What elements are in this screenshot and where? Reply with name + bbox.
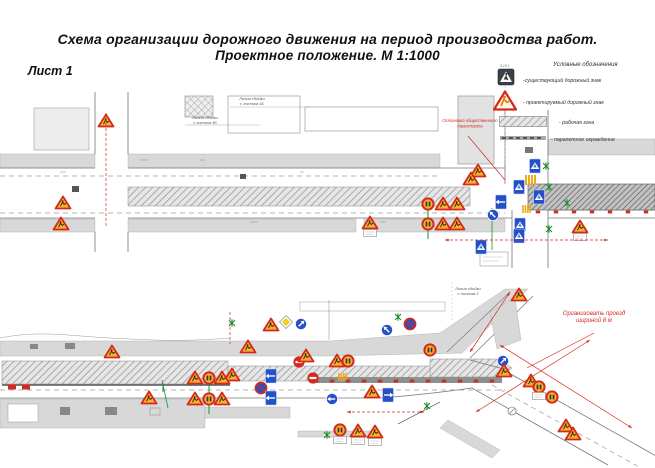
title-line-1: Схема организации дорожного движения на …: [0, 31, 655, 47]
existing-sign-icon: [497, 68, 515, 86]
sign-tick: [410, 380, 414, 383]
sign-tick: [426, 380, 430, 383]
sign-warn: [351, 425, 366, 437]
sign-circle-sym: [508, 407, 516, 415]
sign-board: [352, 438, 365, 445]
legend-item-workzone-label: - рабочая зона: [559, 120, 594, 126]
sign-tree: [395, 313, 401, 321]
sign-tick: [378, 380, 382, 383]
sign-tick: [442, 380, 446, 383]
sign-brect: [514, 229, 525, 243]
top-work-zone-dark: [528, 184, 655, 210]
sign-brect-arrow: [266, 369, 277, 383]
sign-bcirc-arrow: [326, 393, 337, 404]
legend: Условные обозначения 5.19.1 -существующи…: [487, 60, 655, 160]
sign-redblock: [22, 385, 30, 390]
sign-speed: [203, 393, 214, 404]
sign-warn: [142, 392, 157, 404]
sign-board: [369, 439, 382, 446]
sign-zebra: [525, 175, 536, 185]
sign-bcirc-slash: [255, 382, 266, 393]
sign-diamond: [279, 315, 292, 328]
sign-warn: [215, 393, 230, 405]
top-work-zone: [128, 187, 470, 206]
sign-tick: [536, 211, 540, 214]
legend-item-parapet-label: - парапетное ограждение: [551, 137, 615, 143]
bottom-plan: Линия сбойкис листом 2Организовать проез…: [0, 282, 655, 468]
sign-redblock: [8, 385, 16, 390]
sign-brect: [530, 159, 541, 173]
sign-speed: [422, 198, 433, 209]
sign-bcirc-arrow: [487, 209, 498, 220]
sign-tree: [546, 225, 552, 233]
sign-brect-arrow: [383, 388, 394, 402]
bottom-upper-sidewalk: [0, 289, 528, 356]
sign-zebra: [522, 205, 531, 213]
sign-tick: [608, 211, 612, 214]
sign-tick: [362, 380, 366, 383]
sign-tree: [424, 402, 430, 410]
sign-brect: [476, 240, 487, 254]
sign-warn: [56, 197, 71, 209]
sign-speed: [424, 344, 435, 355]
drawing-sheet: Линия сбойкис листом 1БЛиния сбойкис лис…: [0, 0, 655, 468]
sign-tick: [474, 380, 478, 383]
work-zone-swatch: [499, 116, 547, 127]
diagram-label: Линия сбойкис листом 1Б: [238, 96, 265, 106]
sign-warn: [573, 221, 588, 233]
sign-bcirc-slash: [404, 318, 415, 329]
sign-brect-arrow: [266, 391, 277, 405]
parapet-swatch: [500, 135, 546, 141]
sign-tick: [626, 211, 630, 214]
sign-tick: [554, 211, 558, 214]
sign-board: [334, 437, 347, 444]
sign-speed: [334, 424, 345, 435]
diagram-label: Линия сбойкис листом 2: [454, 286, 481, 296]
sign-tick: [572, 211, 576, 214]
projected-sign-icon: [493, 90, 517, 111]
dimension-line: [527, 333, 594, 368]
sign-speed: [422, 218, 433, 229]
sign-brect: [534, 190, 545, 204]
top-labels: Линия сбойкис листом 1БЛиния сбойкис лис…: [191, 96, 498, 128]
legend-item-projected-label: - проектируемый дорожный знак: [523, 100, 604, 106]
sign-tick: [346, 380, 350, 383]
sign-speed: [342, 355, 353, 366]
sign-tick: [644, 211, 648, 214]
sign-speed: [203, 372, 214, 383]
sign-warn: [264, 319, 279, 331]
sign-tick: [458, 380, 462, 383]
sign-speed: [533, 381, 544, 392]
diagram-label: Линия сбойкис листом 1Б: [191, 115, 218, 125]
sign-speed: [546, 391, 557, 402]
sign-brect: [514, 180, 525, 194]
sign-bcirc-arrow: [381, 324, 392, 335]
sign-board: [533, 393, 546, 400]
sign-tick: [394, 380, 398, 383]
sign-bcirc-arrow: [295, 318, 306, 329]
bottom-arrow-line: [398, 402, 440, 424]
sheet-label: Лист 1: [28, 64, 73, 78]
sign-tick: [590, 211, 594, 214]
sign-tick: [330, 380, 334, 383]
sign-warn: [365, 386, 380, 398]
drawing-title: Схема организации дорожного движения на …: [0, 31, 655, 63]
legend-item-existing-label: -существующий дорожный знак: [523, 78, 601, 84]
bottom-curb-line: [0, 334, 230, 340]
sign-brect-arrow: [496, 195, 507, 209]
sign-board: [364, 230, 377, 237]
bottom-work-zone: [2, 359, 512, 385]
sign-tick: [490, 380, 494, 383]
diagram-label: Организовать проездшириной 8 м: [563, 311, 626, 324]
legend-heading: Условные обозначения: [553, 62, 618, 68]
sign-tick: [314, 380, 318, 383]
dimension-line: [500, 345, 632, 428]
sign-board: [574, 234, 587, 241]
sign-warn: [188, 393, 203, 405]
